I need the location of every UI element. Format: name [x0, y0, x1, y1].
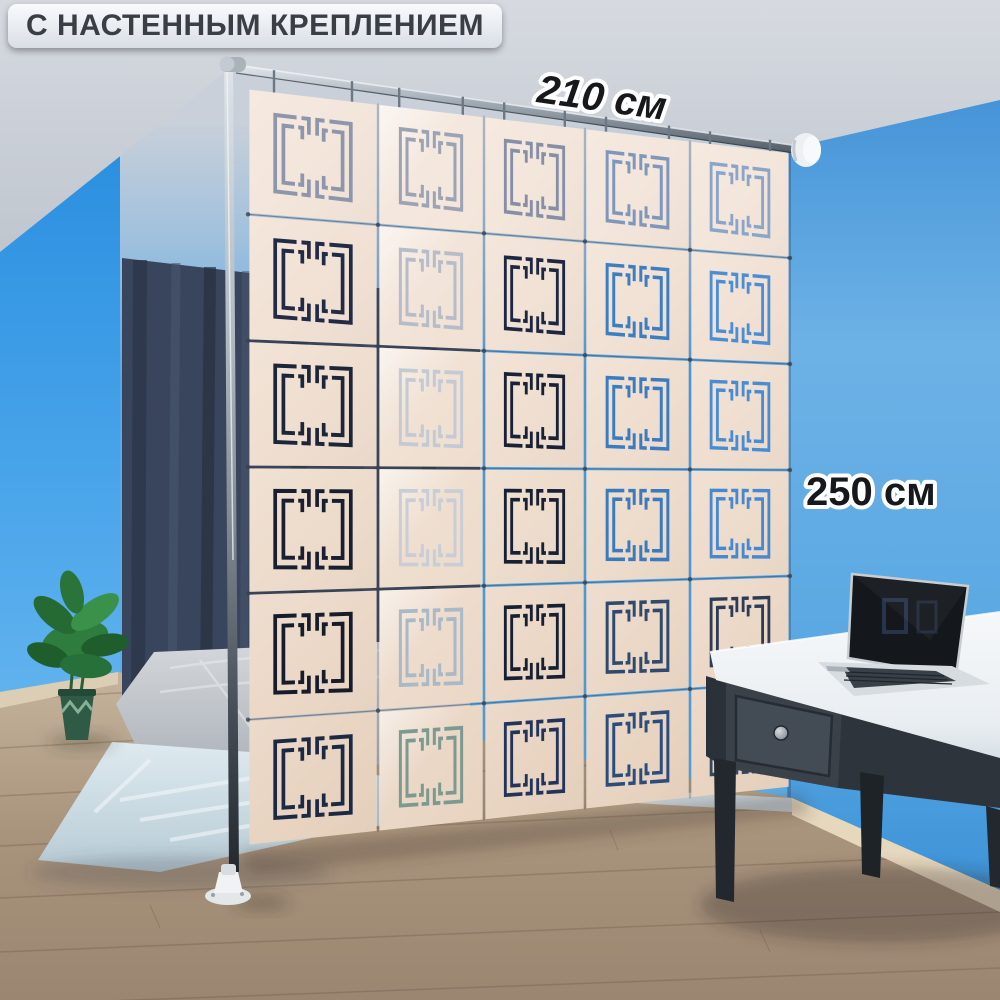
panel-connector — [246, 717, 250, 721]
panel-gloss — [379, 587, 482, 709]
desk-leg — [714, 758, 736, 902]
panel-connector — [688, 687, 692, 691]
panel-gloss — [249, 468, 376, 591]
panel-gloss — [379, 469, 482, 588]
panel-connector — [688, 577, 692, 581]
panel-connector — [583, 353, 587, 357]
promo-banner-text: С НАСТЕННЫМ КРЕПЛЕНИЕМ — [26, 9, 484, 42]
promo-banner: С НАСТЕННЫМ КРЕПЛЕНИЕМ — [8, 4, 502, 48]
panel-gloss — [379, 226, 482, 349]
panel-gloss — [691, 251, 788, 362]
panel-gloss — [586, 690, 688, 808]
panel-gloss — [586, 243, 688, 358]
panel-connector — [376, 587, 380, 591]
panel-connector — [482, 231, 486, 235]
panel-gloss — [379, 348, 482, 467]
panel-connector — [482, 701, 486, 705]
panel-connector — [688, 248, 692, 252]
panel-gloss — [691, 471, 788, 578]
panel-connector — [376, 466, 380, 470]
panel-gloss — [586, 581, 688, 695]
panel-gloss — [691, 361, 788, 468]
panel-connector — [583, 580, 587, 584]
panel-gloss — [691, 142, 788, 257]
panel-connector — [688, 357, 692, 361]
panel-connector — [246, 338, 250, 342]
wall-bracket — [791, 133, 821, 167]
height-dimension-label: 250 см — [806, 470, 936, 514]
panel-gloss — [485, 117, 583, 240]
panel-connector — [788, 362, 792, 366]
panel-gloss — [379, 705, 482, 831]
panel-connector — [246, 591, 250, 595]
panel-gloss — [586, 357, 688, 468]
panel-connector — [583, 694, 587, 698]
room-scene: 210 см 250 см — [0, 0, 1000, 1000]
panel-connector — [583, 239, 587, 243]
panel-connector — [376, 708, 380, 712]
panel-connector — [788, 574, 792, 578]
panel-connector — [583, 467, 587, 471]
panel-connector — [246, 465, 250, 469]
panel-gloss — [249, 591, 376, 719]
panel-connector — [482, 466, 486, 470]
panel-connector — [788, 256, 792, 260]
desk-side-apron — [706, 676, 726, 768]
panel-gloss — [586, 470, 688, 581]
panel-gloss — [249, 216, 376, 345]
product-photo-room-divider: 210 см 250 см С НАСТЕННЫМ КРЕПЛЕНИЕМ — [0, 0, 1000, 1000]
panel-connector — [246, 212, 250, 216]
panel-connector — [688, 467, 692, 471]
panel-connector — [788, 468, 792, 472]
panel-gloss — [485, 235, 583, 354]
panel-gloss — [485, 352, 583, 467]
drawer-knob — [774, 726, 788, 740]
panel-gloss — [249, 90, 376, 224]
desk-leg — [860, 772, 884, 878]
plant-pot — [60, 694, 94, 740]
panel-connector — [482, 584, 486, 588]
panel-connector — [376, 223, 380, 227]
panel-connector — [376, 344, 380, 348]
panel-gloss — [586, 129, 688, 248]
panel-gloss — [249, 712, 376, 844]
panel-gloss — [485, 698, 583, 819]
panel-gloss — [485, 470, 583, 585]
panel-gloss — [485, 584, 583, 702]
panel-gloss — [249, 342, 376, 466]
panel-connector — [482, 349, 486, 353]
panel-gloss — [379, 105, 482, 232]
